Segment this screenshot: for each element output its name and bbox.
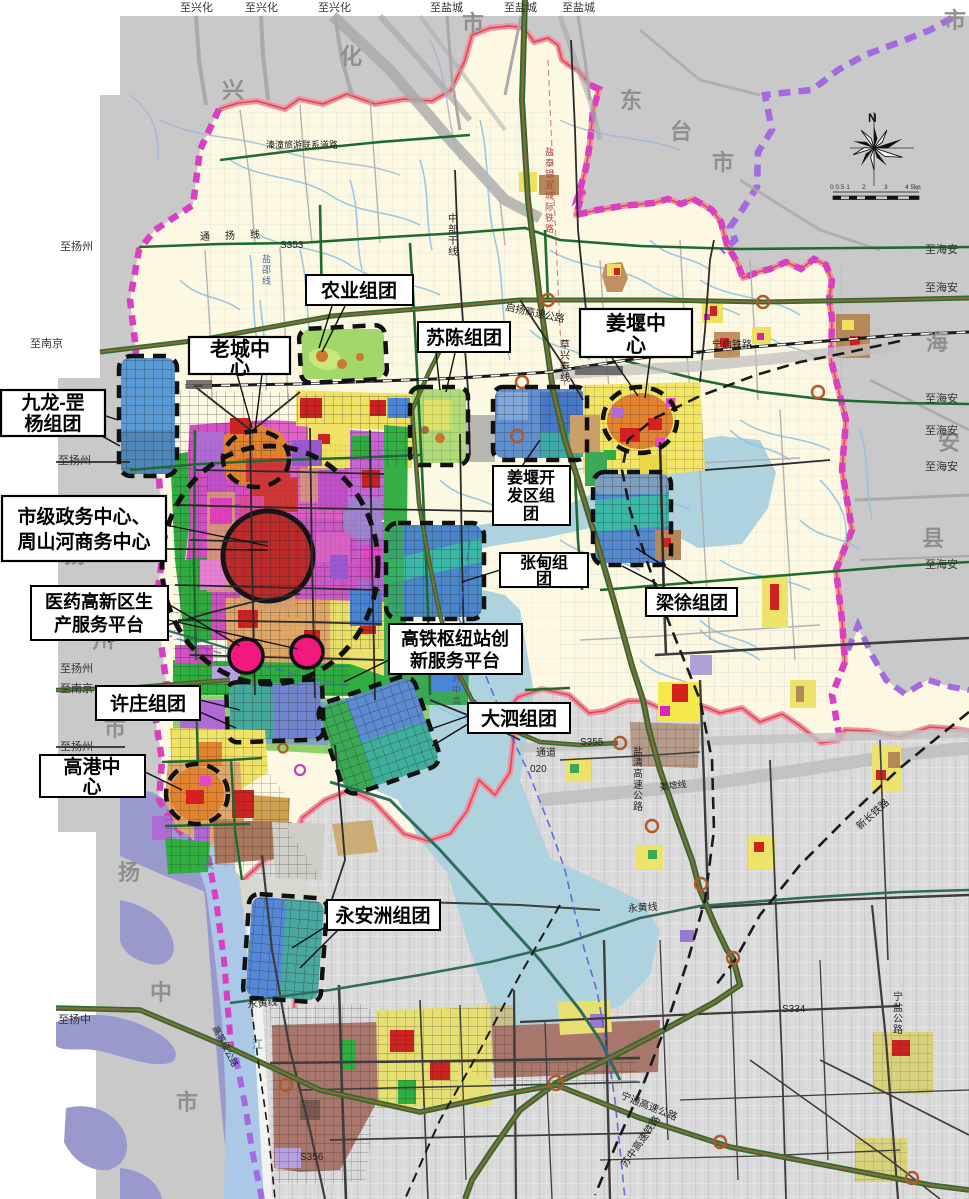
svg-text:扬: 扬: [118, 860, 140, 885]
svg-text:姜堰中: 姜堰中: [606, 311, 666, 335]
svg-text:产服务平台: 产服务平台: [54, 614, 144, 635]
svg-text:至海安: 至海安: [925, 242, 958, 256]
svg-text:市: 市: [944, 8, 966, 33]
svg-text:至扬中: 至扬中: [58, 1012, 91, 1026]
svg-text:苏陈组团: 苏陈组团: [426, 326, 502, 349]
svg-text:S356: S356: [300, 1152, 324, 1163]
svg-text:市级政务中心、: 市级政务中心、: [17, 505, 150, 528]
svg-text:心: 心: [230, 356, 250, 379]
svg-text:市: 市: [712, 150, 734, 175]
svg-text:至盐城: 至盐城: [562, 1, 595, 14]
svg-text:S355: S355: [580, 737, 604, 748]
svg-text:至兴化: 至兴化: [318, 0, 351, 14]
svg-text:周山河商务中心: 周山河商务中心: [17, 530, 150, 553]
svg-text:高港中: 高港中: [63, 755, 120, 778]
svg-text:县: 县: [922, 526, 944, 551]
svg-text:至扬州: 至扬州: [60, 239, 93, 253]
svg-text:至南京: 至南京: [30, 336, 63, 350]
svg-text:盐清高速公路: 盐清高速公路: [633, 745, 643, 813]
svg-text:至海安: 至海安: [925, 391, 958, 405]
svg-text:海: 海: [926, 330, 948, 355]
svg-text:至扬州: 至扬州: [60, 661, 93, 675]
svg-text:心: 心: [82, 776, 101, 798]
svg-text:中部干线: 中部干线: [448, 212, 458, 258]
svg-text:姜堰开: 姜堰开: [507, 468, 555, 487]
svg-text:团: 团: [523, 505, 539, 523]
svg-text:团: 团: [536, 570, 552, 588]
svg-text:至盐城: 至盐城: [430, 1, 463, 14]
svg-text:高铁枢纽站创: 高铁枢纽站创: [401, 628, 509, 649]
svg-text:草兴泰线: 草兴泰线: [560, 339, 570, 384]
svg-text:大泗组团: 大泗组团: [481, 707, 557, 730]
svg-text:张甸组: 张甸组: [520, 553, 568, 572]
svg-text:至海安: 至海安: [925, 423, 958, 437]
svg-text:0 0.5 1: 0 0.5 1: [830, 184, 850, 191]
svg-text:兴: 兴: [222, 78, 244, 103]
svg-text:至兴化: 至兴化: [245, 0, 278, 14]
svg-text:市: 市: [462, 11, 484, 36]
svg-text:至扬州: 至扬州: [58, 453, 91, 467]
svg-text:2: 2: [862, 184, 866, 191]
svg-text:至海安: 至海安: [925, 557, 958, 571]
svg-text:至海安: 至海安: [925, 459, 958, 473]
svg-text:通道: 通道: [536, 746, 556, 759]
svg-text:心: 心: [626, 334, 646, 357]
svg-text:永安洲组团: 永安洲组团: [334, 904, 430, 927]
svg-text:S353: S353: [280, 240, 304, 251]
svg-text:东: 东: [620, 88, 642, 113]
svg-text:N: N: [868, 111, 877, 125]
svg-text:溱潼旅游联系道路: 溱潼旅游联系道路: [266, 139, 338, 150]
svg-text:4 5㎞: 4 5㎞: [905, 183, 921, 191]
svg-text:020: 020: [530, 764, 547, 775]
svg-text:通: 通: [200, 231, 210, 243]
svg-text:线: 线: [250, 228, 260, 241]
svg-text:医药高新区生: 医药高新区生: [45, 591, 153, 612]
svg-text:宁盐公路: 宁盐公路: [893, 990, 903, 1036]
svg-text:至盐城: 至盐城: [504, 1, 537, 14]
svg-text:中: 中: [150, 980, 172, 1005]
svg-text:九龙-罡: 九龙-罡: [20, 391, 84, 414]
svg-text:至南京: 至南京: [60, 681, 93, 695]
svg-text:盐邵线: 盐邵线: [262, 253, 271, 286]
svg-text:发区组: 发区组: [506, 486, 555, 505]
svg-text:台: 台: [670, 119, 692, 144]
svg-text:S334: S334: [782, 1004, 806, 1015]
svg-text:至扬州: 至扬州: [60, 739, 93, 753]
svg-text:农业组团: 农业组团: [320, 279, 397, 302]
svg-text:扬: 扬: [225, 229, 235, 242]
svg-text:至海安: 至海安: [925, 280, 958, 294]
svg-text:苏中高: 苏中高: [452, 673, 461, 706]
svg-text:杨组团: 杨组团: [24, 412, 81, 435]
svg-text:化: 化: [340, 44, 362, 69]
svg-text:江: 江: [252, 1038, 263, 1051]
svg-text:3: 3: [884, 184, 888, 191]
svg-text:市: 市: [176, 1090, 198, 1115]
svg-text:至兴化: 至兴化: [180, 0, 213, 14]
svg-text:新服务平台: 新服务平台: [410, 650, 500, 671]
svg-text:长: 长: [203, 858, 214, 871]
svg-text:梁徐组团: 梁徐组团: [655, 592, 728, 613]
svg-text:许庄组团: 许庄组团: [110, 692, 186, 715]
svg-text:宁启铁路: 宁启铁路: [712, 338, 752, 351]
